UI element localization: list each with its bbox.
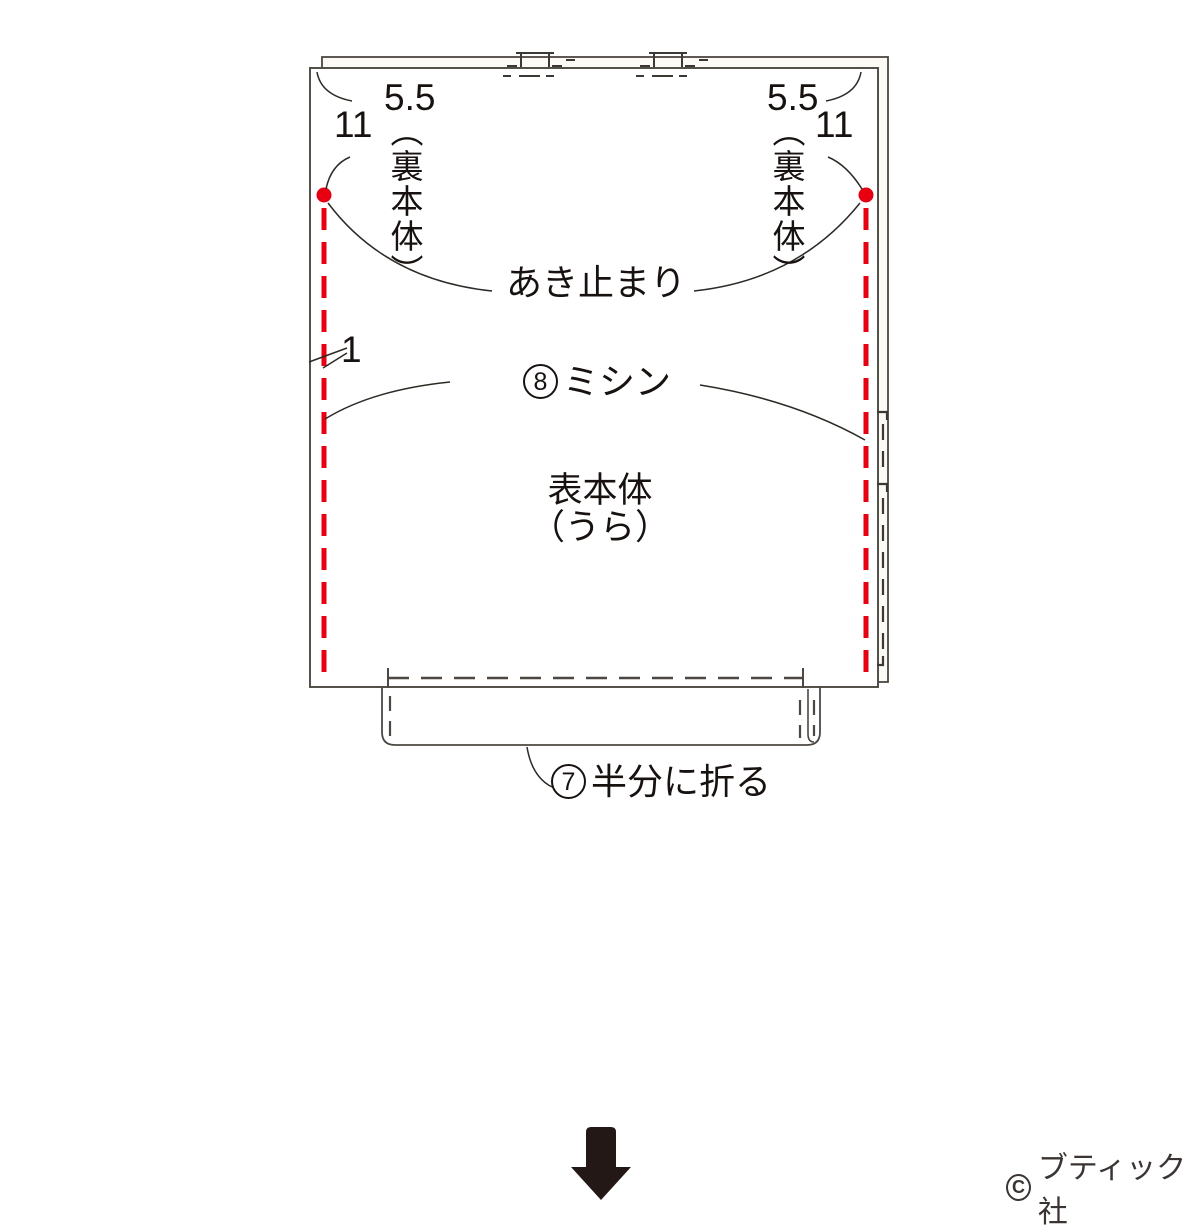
dim-lining-right: 5.5 [767, 79, 818, 118]
leader-step7 [527, 747, 552, 787]
body-name-line2: （うら） [530, 510, 670, 547]
body-name-line1: 表本体 [547, 473, 652, 510]
opening-stop-dot-right [859, 188, 874, 203]
step8-text: ミシン [563, 363, 671, 401]
copyright: C ブティック社 [1006, 1143, 1200, 1231]
copyright-symbol: C [1006, 1174, 1031, 1201]
sewing-diagram: 5.5 （裏本体） 11 5.5 （裏本体） 11 1 あき止まり 8 ミシン … [0, 0, 1200, 1200]
opening-stop-label: あき止まり [506, 264, 686, 302]
diagram-lineart [0, 0, 1200, 1200]
down-arrow [571, 1127, 631, 1200]
part-label-lining-right: （裏本体） [770, 114, 803, 289]
bottom-flap-outline [382, 687, 820, 745]
step7-label: 7 半分に折る [551, 763, 771, 801]
dim-body-right: 11 [815, 106, 853, 145]
opening-stop-dot-left [317, 188, 332, 203]
step7-circled-number: 7 [551, 764, 586, 799]
dim-lining-left: 5.5 [384, 79, 435, 118]
step7-text: 半分に折る [591, 763, 771, 801]
dim-seam-allowance: 1 [341, 331, 362, 370]
step8-circled-number: 8 [523, 364, 558, 399]
dim-body-left: 11 [334, 106, 372, 145]
step8-label: 8 ミシン [523, 363, 671, 401]
part-label-lining-left: （裏本体） [388, 114, 421, 289]
copyright-publisher: ブティック社 [1038, 1143, 1200, 1231]
